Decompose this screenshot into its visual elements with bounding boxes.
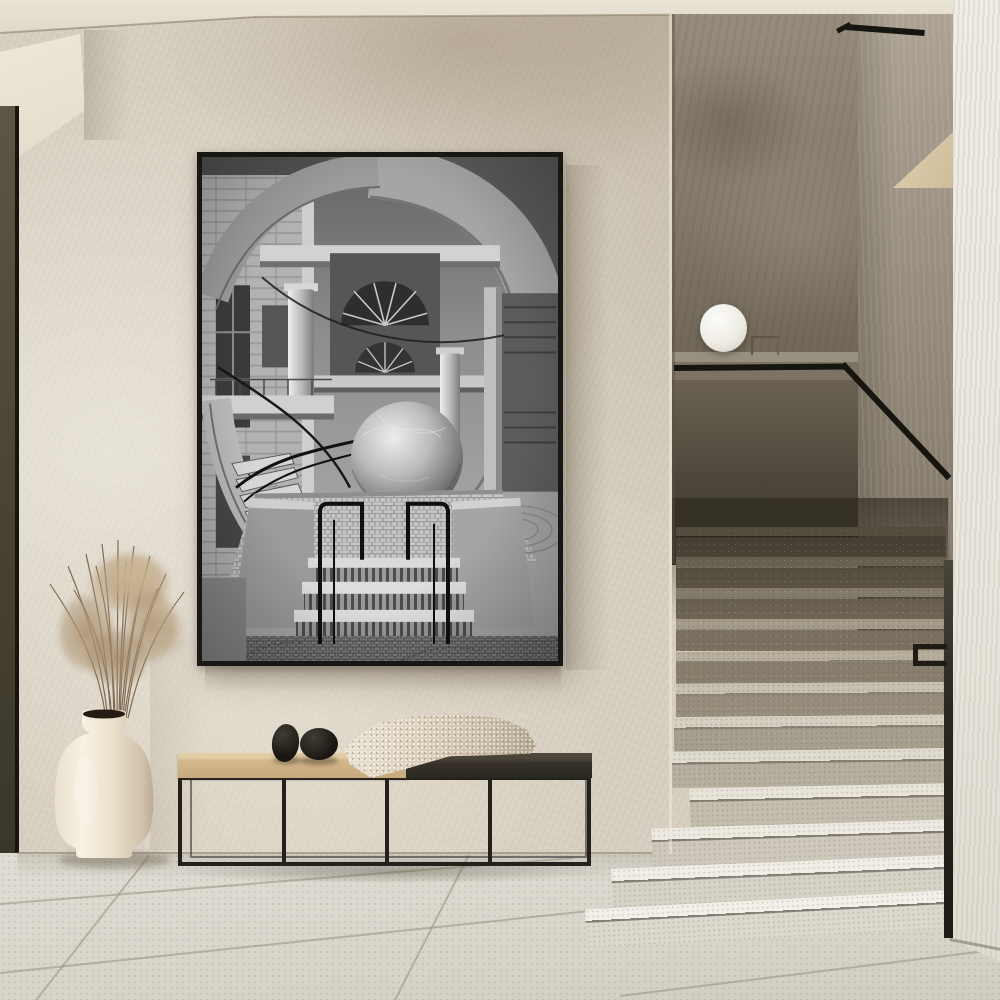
bench-leg — [385, 780, 389, 862]
bench-leg — [488, 780, 492, 862]
bench-frame — [178, 776, 591, 866]
stair-step — [674, 715, 946, 752]
doorway-header-shadow — [84, 30, 130, 140]
frame-wall-shadow — [566, 165, 610, 670]
stair-step — [676, 682, 946, 717]
stair-step — [676, 619, 946, 651]
lamp-stand — [751, 336, 779, 355]
framed-print-photo — [202, 157, 558, 661]
door-frame-gap — [15, 106, 19, 856]
stair-shadow-veil — [672, 498, 948, 623]
stair-wall-trim — [944, 560, 953, 938]
handrail-bracket — [913, 644, 947, 666]
stairwell-back-wall-texture — [672, 14, 858, 374]
globe-lamp — [700, 304, 747, 352]
bench-leg — [282, 780, 286, 862]
black-round-stone — [300, 728, 338, 760]
right-white-wall-texture — [953, 0, 1000, 960]
ceramic-vase — [50, 706, 158, 866]
pampas-sprig — [148, 592, 196, 672]
hallway-scene — [0, 0, 1000, 1000]
wall-corner-shadow — [672, 14, 675, 564]
frame-bottom-shadow — [205, 666, 561, 692]
framed-print — [197, 152, 563, 666]
stair-step — [672, 748, 946, 788]
stair-step — [676, 650, 946, 683]
